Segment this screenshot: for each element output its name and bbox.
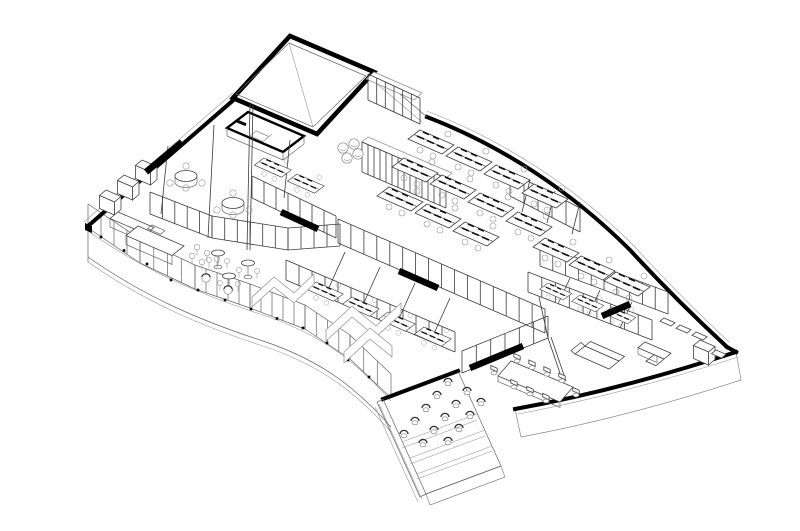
circle — [598, 296, 602, 300]
ellipse — [420, 443, 426, 447]
circle — [483, 148, 489, 154]
workstation — [506, 212, 552, 241]
meeting-table — [214, 190, 252, 218]
shelf — [660, 318, 675, 326]
auditorium-chair — [419, 439, 427, 446]
auditorium-chair — [444, 437, 452, 444]
circle — [544, 207, 550, 213]
ellipse — [491, 371, 497, 375]
circle — [452, 198, 458, 204]
auditorium-chair — [463, 387, 471, 394]
auditorium-chair — [400, 430, 408, 437]
kitchen-island — [126, 226, 184, 256]
path — [197, 289, 200, 292]
pouf — [342, 153, 352, 163]
ellipse — [212, 250, 225, 256]
room-divider — [539, 297, 548, 338]
circle — [437, 227, 443, 233]
circle — [506, 188, 512, 194]
boardroom-chair — [491, 365, 497, 375]
circle — [262, 172, 267, 177]
circle — [372, 298, 377, 303]
floor-slab — [88, 228, 741, 505]
circle — [386, 204, 392, 210]
workstation — [468, 193, 514, 222]
circle — [570, 239, 576, 245]
rail-post — [123, 249, 126, 252]
auditorium-chair — [411, 417, 419, 424]
circle — [235, 281, 240, 286]
bar-stool — [189, 253, 195, 265]
circle — [324, 300, 329, 305]
bar-stool — [214, 256, 220, 268]
ellipse — [559, 379, 565, 383]
path — [170, 279, 173, 282]
boardroom-chair — [544, 367, 550, 377]
circle — [189, 253, 195, 259]
door-bar — [146, 142, 182, 172]
circle — [555, 261, 561, 267]
ellipse — [529, 366, 535, 370]
ellipse — [573, 393, 579, 397]
rail-post — [170, 279, 173, 282]
circle — [630, 308, 634, 312]
boardroom-chair — [514, 353, 520, 363]
circle — [305, 192, 310, 197]
ellipse — [467, 415, 473, 419]
bar-stool — [204, 250, 210, 262]
ellipse — [242, 260, 255, 266]
circle — [199, 259, 205, 265]
core — [227, 36, 422, 160]
rail-post — [146, 263, 149, 266]
circle — [455, 164, 461, 170]
poufs — [338, 139, 363, 163]
pouf — [338, 143, 348, 153]
ellipse — [478, 402, 484, 406]
auditorium-chair — [477, 398, 485, 405]
ellipse — [514, 359, 520, 363]
circle — [214, 256, 220, 262]
rail-post — [368, 376, 371, 379]
boardroom-chair — [573, 387, 579, 397]
rail-post — [224, 299, 227, 302]
circle — [224, 258, 229, 263]
closet — [694, 340, 716, 365]
circle — [414, 188, 420, 194]
circle — [204, 250, 210, 256]
facade-slab-edge — [88, 257, 391, 427]
circle — [167, 180, 173, 186]
workstation — [415, 204, 461, 233]
side-stair — [377, 399, 426, 497]
circle — [396, 330, 401, 335]
circle — [546, 295, 550, 299]
circle — [199, 180, 205, 186]
office-desk — [287, 174, 324, 197]
circle — [477, 210, 483, 216]
circle — [531, 201, 537, 207]
path — [276, 317, 279, 320]
pouf — [353, 149, 363, 159]
curtain-wall-seg — [195, 265, 250, 308]
pouf — [349, 139, 359, 149]
circle — [422, 341, 427, 346]
auditorium-chair — [466, 411, 474, 418]
circle — [626, 295, 632, 301]
high-table — [236, 260, 259, 279]
shelf — [692, 332, 707, 340]
tub-chair — [224, 286, 232, 294]
path — [244, 266, 252, 279]
workstation — [484, 165, 530, 194]
path — [146, 263, 149, 266]
ellipse — [543, 399, 549, 403]
circle — [515, 229, 521, 235]
ellipse — [527, 392, 533, 396]
circle — [236, 267, 241, 272]
auditorium-chair — [452, 400, 460, 407]
circle — [295, 188, 300, 193]
circle — [254, 268, 259, 273]
workstation — [453, 222, 499, 251]
shelf — [676, 325, 691, 333]
path — [368, 376, 371, 379]
rail-post — [100, 236, 103, 239]
tub-chair — [202, 274, 210, 282]
ellipse — [431, 430, 437, 434]
rail-post — [197, 289, 200, 292]
ellipse — [175, 171, 197, 182]
auditorium-chair — [430, 426, 438, 433]
room-divider — [208, 125, 214, 238]
ellipse — [442, 417, 448, 421]
circle — [217, 280, 222, 285]
circle — [528, 235, 534, 241]
path — [326, 342, 329, 345]
auditorium-slab — [426, 466, 505, 505]
path — [123, 249, 126, 252]
circle — [417, 147, 423, 153]
ellipse — [511, 385, 517, 389]
floor-plan-svg — [0, 0, 800, 531]
office-desk — [254, 158, 291, 181]
rail-post — [276, 317, 279, 320]
circle — [342, 153, 352, 163]
ellipse — [453, 404, 459, 408]
circle — [641, 273, 647, 279]
bar-stool — [199, 259, 205, 271]
auditorium-chair — [455, 424, 463, 431]
facade-slab-edge-2 — [88, 262, 391, 432]
auditorium-chair — [433, 391, 441, 398]
ellipse — [445, 382, 451, 386]
ellipse — [434, 395, 440, 399]
auditorium-chair — [444, 378, 452, 385]
circle — [468, 170, 474, 176]
circle — [353, 149, 363, 159]
rail-post — [250, 308, 253, 311]
office-desk — [414, 327, 451, 350]
bar-stool — [194, 244, 200, 256]
circle — [230, 212, 236, 218]
lounge-sofa — [571, 342, 625, 370]
path — [250, 308, 253, 311]
circle — [246, 207, 252, 213]
axonometric-floor-plan-drawing — [0, 0, 800, 531]
auditorium-chair — [422, 404, 430, 411]
circle — [578, 307, 582, 311]
workstation — [446, 147, 492, 176]
circle — [399, 210, 405, 216]
circle — [578, 273, 584, 279]
circle — [183, 163, 189, 169]
circle — [505, 194, 511, 200]
path — [214, 256, 222, 269]
circle — [414, 181, 420, 187]
circle — [230, 190, 236, 196]
circle — [214, 207, 220, 213]
ellipse — [222, 198, 244, 209]
circle — [430, 153, 436, 159]
door-bar — [399, 271, 438, 288]
circle — [445, 131, 451, 137]
circle — [317, 175, 322, 180]
ellipse — [456, 428, 462, 432]
circle — [467, 176, 473, 182]
circle — [314, 296, 319, 301]
rail-post — [302, 327, 305, 330]
ellipse — [423, 408, 429, 412]
ellipse — [223, 273, 236, 279]
ellipse — [464, 391, 470, 395]
circle — [183, 185, 189, 191]
office-desk — [572, 295, 604, 315]
path — [302, 327, 305, 330]
ellipse — [401, 434, 407, 438]
circle — [408, 313, 413, 318]
boardroom-chair — [529, 360, 535, 370]
path — [100, 236, 103, 239]
rail-post — [326, 342, 329, 345]
circle — [475, 245, 481, 251]
circle — [490, 216, 496, 222]
meeting-table — [167, 163, 205, 191]
circle — [606, 257, 612, 263]
circle — [452, 205, 458, 211]
partition — [150, 192, 212, 238]
ellipse — [412, 421, 418, 425]
zigzag-sofa — [344, 328, 392, 363]
circle — [493, 182, 499, 188]
circle — [591, 279, 597, 285]
workstation — [430, 175, 476, 204]
circle — [490, 223, 496, 229]
door-bar — [281, 212, 318, 229]
circle — [462, 239, 468, 245]
circle — [272, 176, 277, 181]
circle — [432, 345, 437, 350]
path — [224, 299, 227, 302]
auditorium-chair — [441, 413, 449, 420]
ellipse — [544, 372, 550, 376]
workstation — [408, 130, 454, 159]
side-stair-lines — [375, 404, 422, 502]
ellipse — [445, 441, 451, 445]
circle — [338, 143, 348, 153]
circle — [194, 244, 200, 250]
circle — [349, 139, 359, 149]
circle — [542, 255, 548, 261]
perimeter-walls — [84, 72, 736, 409]
circle — [424, 221, 430, 227]
